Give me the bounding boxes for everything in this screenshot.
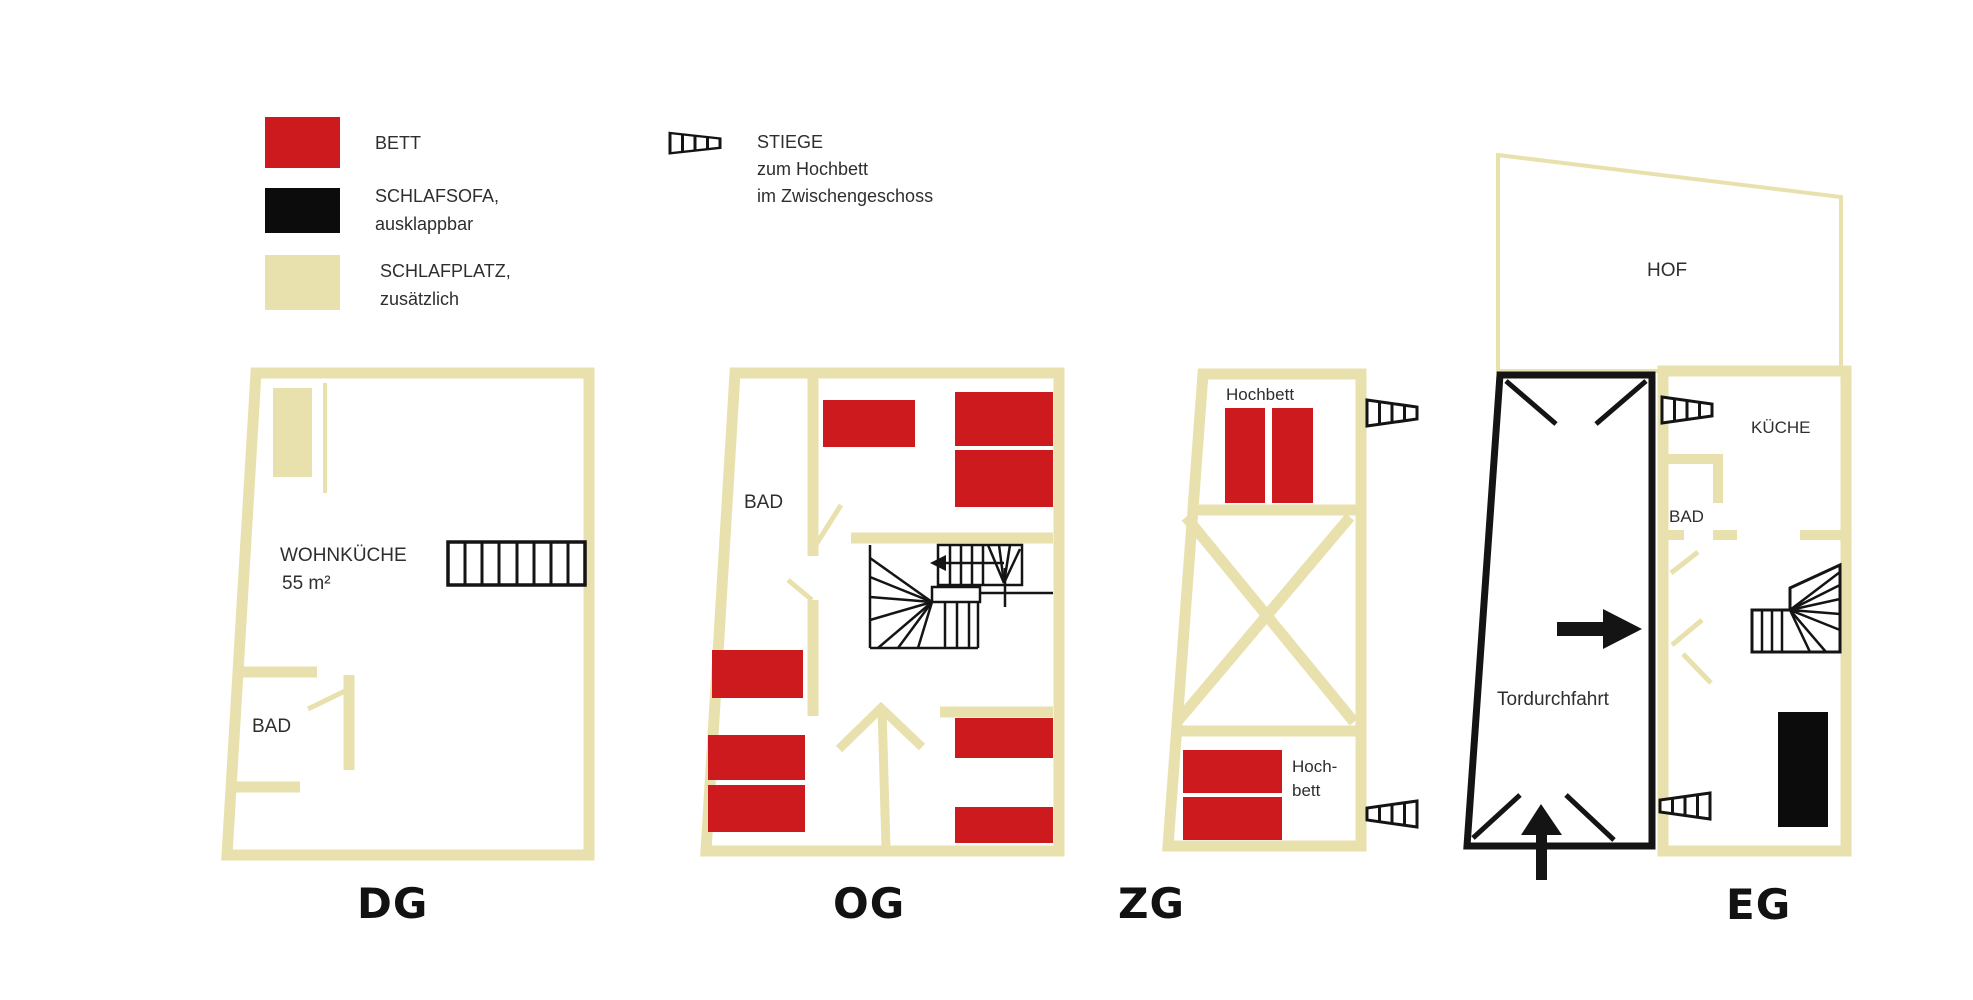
plan-dg [227,373,589,855]
dg-stair [448,542,585,585]
eg-door-swing [1683,654,1711,683]
og-bed-rect [955,807,1053,843]
stiege-icon [670,133,720,153]
floor-label-eg: EG [1726,880,1791,929]
legend-bett-label: BETT [375,130,421,157]
dg-wohnkueche-area-label: 55 m² [282,571,331,597]
eg-winder-stair [1752,565,1840,652]
og-bed-rect [712,650,803,698]
og-door-swing-2 [788,580,812,600]
og-bed-rect [708,785,805,832]
dg-bad-label: BAD [252,714,291,740]
floor-label-zg: ZG [1118,879,1185,928]
legend-schlafsofa-swatch [265,188,340,233]
eg-gate-mark [1566,795,1614,840]
legend-schlafsofa-label-2: ausklappbar [375,211,473,238]
zg-hochbett-rect [1183,750,1282,793]
legend-stiege-label-3: im Zwischengeschoss [757,183,933,210]
eg-gate-mark [1473,795,1520,838]
dg-bad-door-swing [308,691,345,709]
eg-gate-mark [1506,381,1556,424]
og-partition-arrow [839,708,922,848]
zg-hochbett-rect [1272,408,1313,503]
zg-hochbett-rect [1225,408,1265,503]
stiege-icon [1367,801,1417,827]
eg-right-arrow [1557,609,1642,649]
eg-tordurchfahrt-outline [1467,375,1652,846]
dg-wohnkueche-label: WOHNKÜCHE [280,543,407,569]
eg-entry-arrow [1521,804,1562,880]
stiege-icon [1367,400,1417,426]
stiege-icon [1662,397,1712,423]
legend-stiege-label-1: STIEGE [757,129,823,156]
legend-schlafsofa-label-1: SCHLAFSOFA, [375,183,499,210]
plan-og [706,373,1059,851]
legend-schlafplatz-swatch [265,255,340,310]
floor-label-og: OG [833,879,905,928]
eg-gate-mark [1596,381,1646,424]
og-winder-stair [870,545,1053,648]
legend-bett-swatch [265,117,340,168]
eg-kueche-label: KÜCHE [1751,417,1811,439]
eg-door-swing [1671,552,1698,573]
zg-hochbett-bottom-label-1: Hoch- [1292,756,1337,778]
og-bad-label: BAD [744,490,783,516]
zg-hochbett-bottom-label-2: bett [1292,780,1320,802]
legend-stiege-label-2: zum Hochbett [757,156,868,183]
og-bed-rect [955,718,1053,758]
og-bed-rect [955,392,1053,446]
zg-hochbett-rect [1183,797,1282,840]
og-bed-rect [708,735,805,780]
eg-door-swing [1672,620,1702,645]
legend-schlafplatz-label-2: zusätzlich [380,286,459,313]
og-bed-rect [823,400,915,447]
eg-hof-label: HOF [1647,258,1687,284]
eg-tordurchfahrt-label: Tordurchfahrt [1497,687,1609,713]
og-bed-rect [955,450,1053,507]
eg-bad-label: BAD [1669,506,1704,528]
dg-schlafplatz-area [273,388,312,477]
floorplan-diagram: BETT SCHLAFSOFA, ausklappbar SCHLAFPLATZ… [0,0,1973,1000]
zg-hochbett-top-label: Hochbett [1226,384,1294,406]
floor-label-dg: DG [357,879,428,928]
eg-schlafsofa-rect [1778,712,1828,827]
legend-schlafplatz-label-1: SCHLAFPLATZ, [380,258,511,285]
